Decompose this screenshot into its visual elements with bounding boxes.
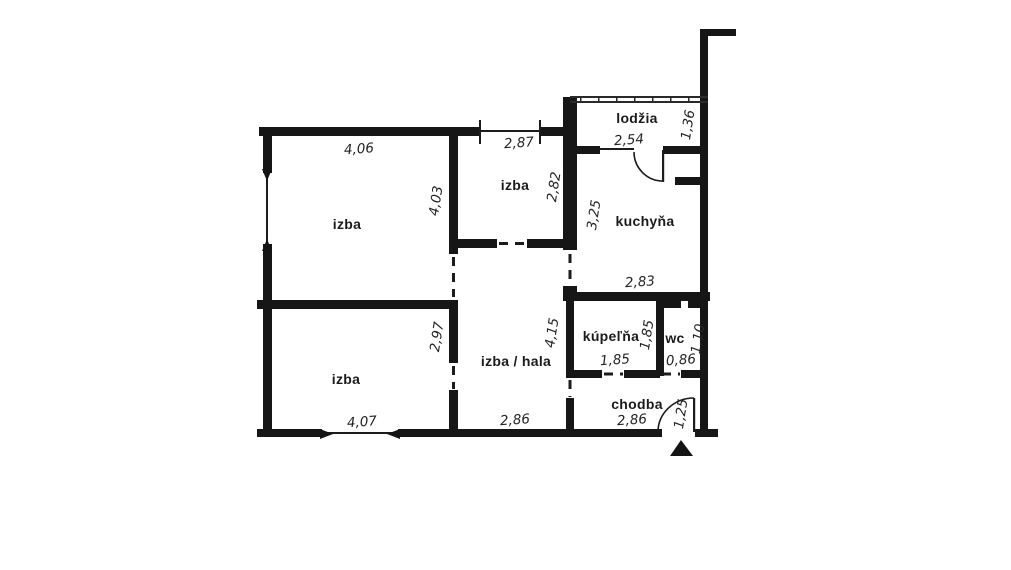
window-arrow-icon (262, 169, 272, 181)
dim-izba-mid-width: 2,87 (504, 136, 535, 152)
dim-wc-width: 0,86 (666, 353, 697, 369)
dim-izba-bottom-width: 4,07 (347, 415, 378, 431)
window-arrow-icon (387, 429, 400, 439)
room-label-izba-middle: izba (501, 178, 529, 192)
dim-chodba-width: 2,86 (617, 413, 648, 429)
dim-lodzia-width: 2,54 (614, 133, 645, 149)
doors-layer (634, 150, 695, 432)
walls-layer (257, 29, 736, 437)
window-left-izba (266, 178, 268, 242)
room-label-izba-hala: izba / hala (481, 354, 551, 368)
room-label-izba-top-left: izba (333, 217, 361, 231)
balcony-door-arc-icon (634, 152, 663, 181)
dim-izba-top-width: 4,06 (344, 142, 375, 158)
room-label-wc: wc (665, 331, 684, 345)
window-tick-icon (539, 120, 541, 144)
floorplan-page: izba izba lodžia kuchyňa kúpeľňa wc izba… (0, 0, 1011, 570)
floorplan-canvas (0, 0, 1011, 570)
balcony-door-leaf (662, 150, 664, 182)
entrance-arrow-icon (670, 440, 693, 456)
room-label-kupelna: kúpeľňa (583, 329, 640, 343)
room-label-lodzia: lodžia (616, 111, 657, 125)
window-tick-icon (479, 120, 481, 144)
dim-hala-width: 2,86 (500, 413, 531, 429)
room-label-kuchyna: kuchyňa (616, 214, 675, 228)
entrance-door-leaf (693, 398, 695, 432)
dim-kuchyna-width: 2,83 (625, 275, 656, 291)
room-label-chodba: chodba (611, 397, 663, 411)
dim-kupelna-width: 1,85 (600, 353, 631, 369)
room-label-izba-bottom: izba (332, 372, 360, 386)
window-bottom-izba (322, 432, 398, 434)
window-arrow-icon (320, 429, 333, 439)
window-middle-izba (480, 130, 540, 132)
loggia-railing (570, 96, 708, 103)
